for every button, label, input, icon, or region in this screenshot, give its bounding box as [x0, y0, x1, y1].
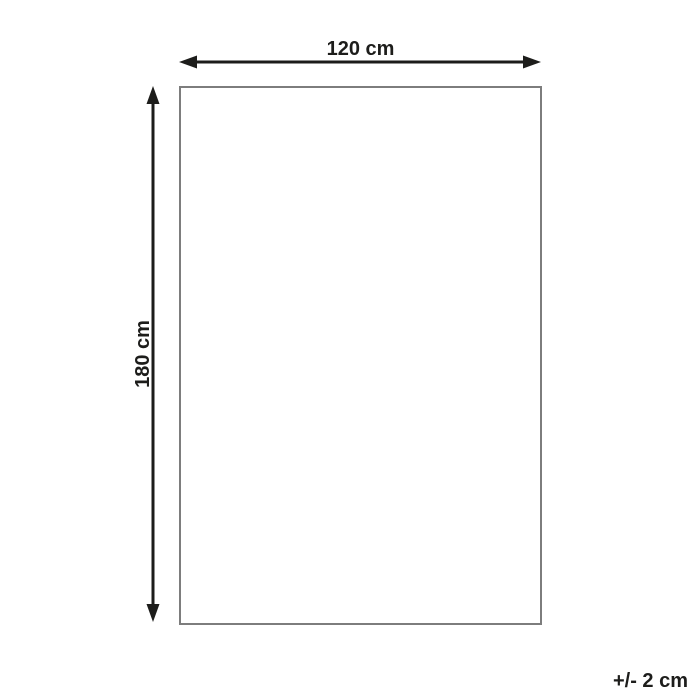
height-dimension-label: 180 cm [133, 320, 153, 388]
product-outline-rect [180, 87, 541, 624]
tolerance-label: +/- 2 cm [613, 671, 688, 691]
dimension-diagram-graphics [0, 0, 700, 700]
dimension-diagram: 120 cm 180 cm +/- 2 cm [0, 0, 700, 700]
arrowhead-down-icon [147, 604, 160, 622]
arrowhead-up-icon [147, 86, 160, 104]
width-dimension-label: 120 cm [179, 39, 542, 59]
